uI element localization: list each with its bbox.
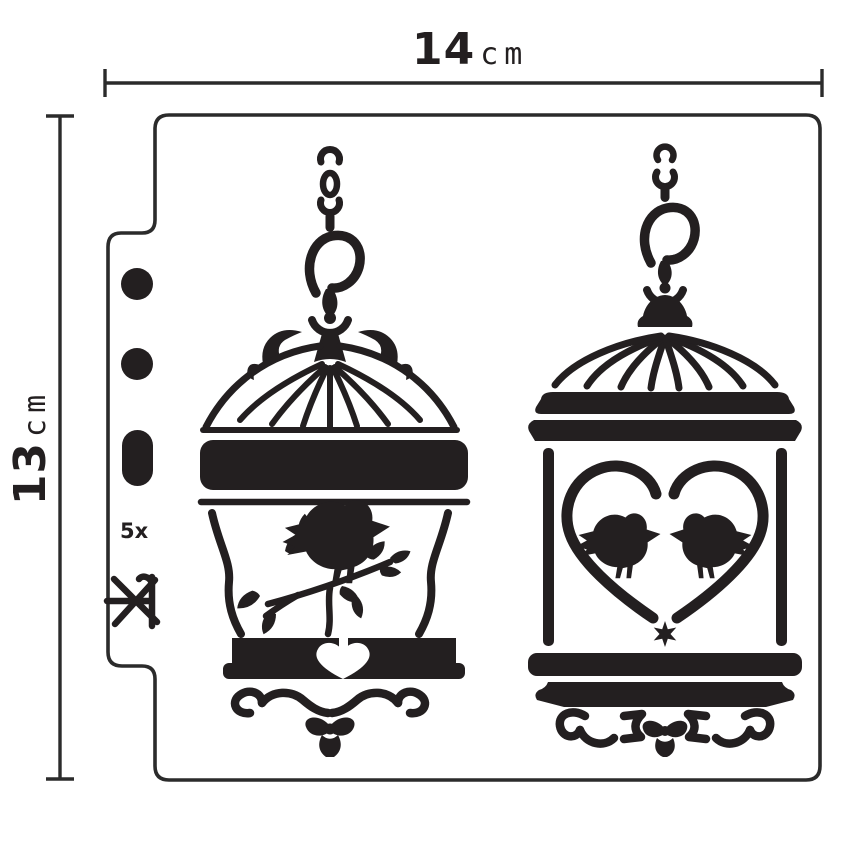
round-hole — [121, 268, 153, 300]
width-label: 14 cm — [412, 28, 528, 72]
cage-post-left — [543, 448, 554, 646]
cornice-band-lower — [528, 420, 802, 441]
base-band-lower — [535, 682, 794, 707]
stencil-product-image: 14 cm 13 cm 5x — [0, 0, 850, 850]
stencil-code-label: 5x — [120, 521, 148, 542]
width-unit: cm — [480, 37, 528, 72]
height-label: 13 cm — [9, 389, 53, 505]
height-unit: cm — [18, 389, 53, 437]
cage-post-right — [776, 448, 787, 646]
cage-base-band-with-heart — [223, 634, 465, 679]
slot-hole — [122, 430, 153, 486]
round-hole — [121, 348, 153, 380]
base-band-upper — [528, 653, 802, 676]
cornice-band-upper — [535, 392, 795, 414]
width-value: 14 — [412, 28, 475, 72]
stencil-drawing — [0, 0, 850, 850]
height-value: 13 — [9, 442, 53, 505]
cage-collar-band — [200, 440, 468, 490]
